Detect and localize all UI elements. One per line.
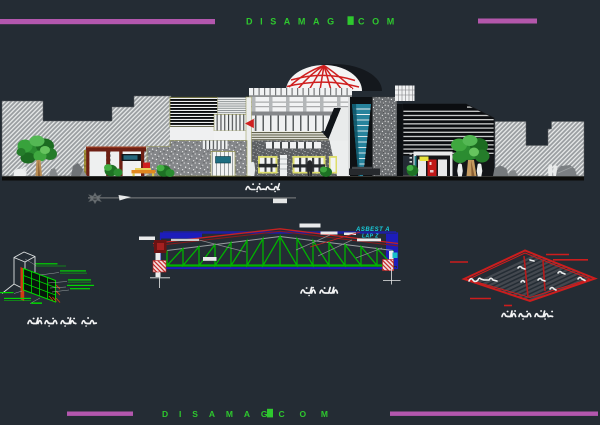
svg-text:ASBEST A: ASBEST A [355, 227, 390, 233]
svg-text:COM: COM [358, 17, 402, 27]
svg-text:DISAMAG: DISAMAG [162, 409, 278, 419]
svg-text:LAP Z: LAP Z [362, 234, 379, 240]
svg-text:DISAMAG: DISAMAG [246, 17, 342, 27]
svg-text:COM: COM [279, 409, 343, 419]
